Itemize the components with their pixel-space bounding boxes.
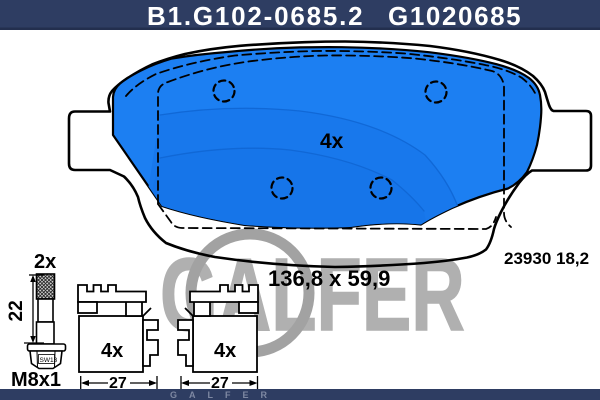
svg-text:G1020685: G1020685 [388, 1, 522, 31]
svg-text:GALFER: GALFER [170, 390, 279, 400]
svg-text:M8x1: M8x1 [11, 369, 61, 391]
svg-text:22: 22 [6, 300, 27, 321]
svg-text:SW13: SW13 [40, 357, 58, 364]
svg-text:4x: 4x [214, 340, 236, 362]
svg-text:4x: 4x [320, 130, 344, 153]
svg-text:136,8 x 59,9: 136,8 x 59,9 [268, 266, 390, 291]
svg-text:B1.G102-0685.2: B1.G102-0685.2 [147, 1, 364, 31]
svg-text:2x: 2x [34, 251, 56, 273]
svg-text:4x: 4x [101, 340, 123, 362]
svg-text:23930 18,2: 23930 18,2 [504, 249, 589, 268]
